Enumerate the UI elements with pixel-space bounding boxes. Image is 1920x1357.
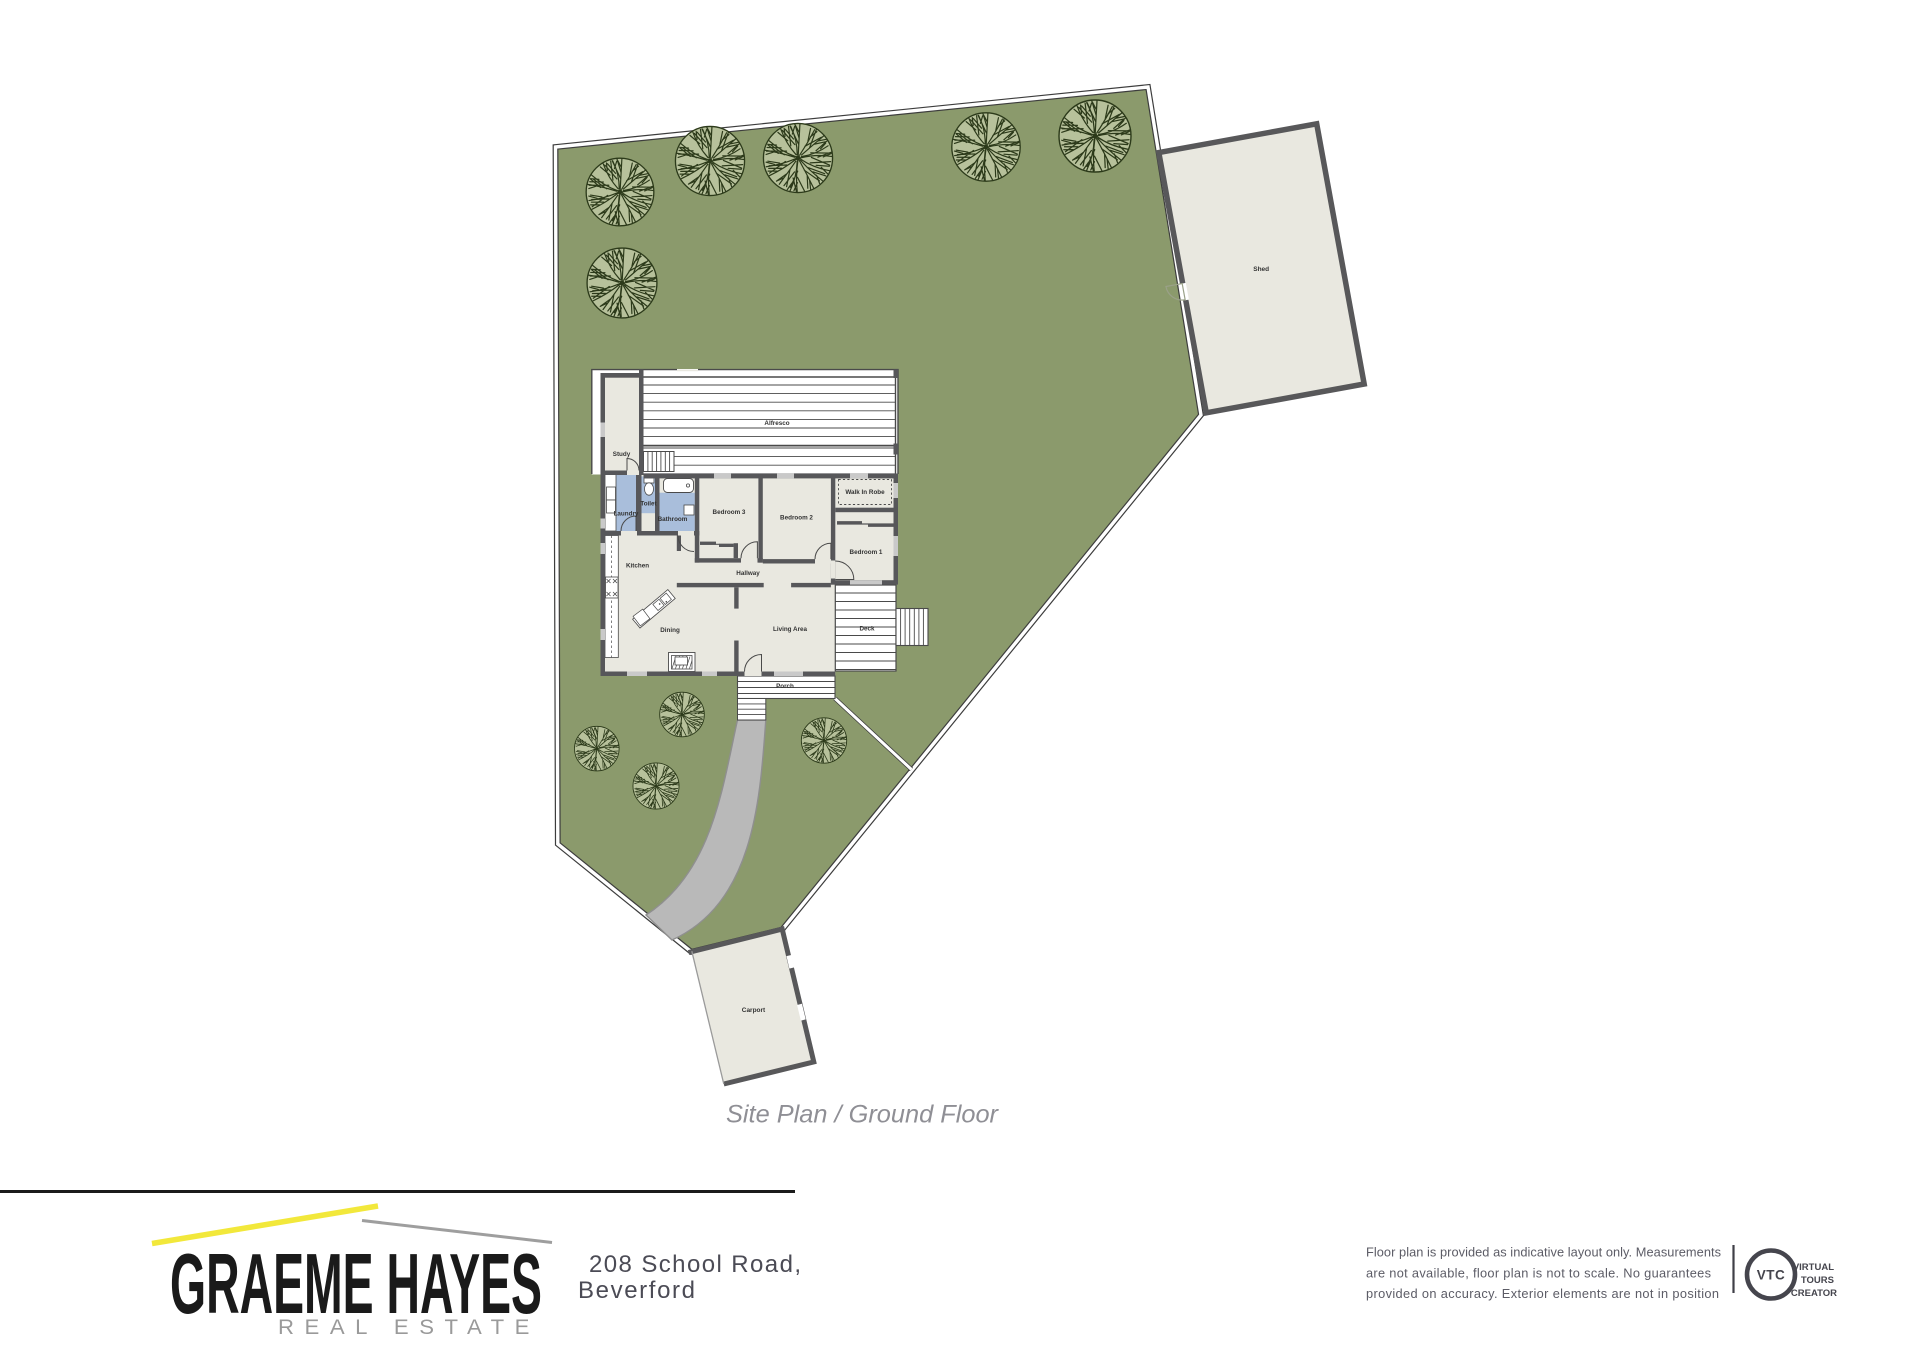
svg-text:Toilet: Toilet <box>640 501 657 508</box>
svg-text:Bedroom 3: Bedroom 3 <box>713 509 746 516</box>
svg-text:Laundry: Laundry <box>614 511 639 518</box>
svg-text:Beverford: Beverford <box>578 1277 695 1304</box>
svg-text:VTC: VTC <box>1757 1268 1786 1283</box>
svg-text:Study: Study <box>613 451 631 458</box>
svg-text:Bathroom: Bathroom <box>658 516 688 523</box>
svg-text:provided on accuracy. Exterior: provided on accuracy. Exterior elements … <box>1366 1286 1719 1301</box>
svg-text:Carport: Carport <box>742 1007 766 1014</box>
svg-text:Living Area: Living Area <box>773 626 808 633</box>
svg-text:Bedroom 1: Bedroom 1 <box>850 549 883 556</box>
svg-text:208 School Road,: 208 School Road, <box>589 1251 801 1278</box>
svg-text:Dining: Dining <box>660 627 680 634</box>
svg-text:VIRTUAL: VIRTUAL <box>1793 1262 1834 1273</box>
svg-text:Deck: Deck <box>859 626 875 633</box>
svg-text:Alfresco: Alfresco <box>764 420 789 427</box>
svg-text:Kitchen: Kitchen <box>626 563 649 570</box>
svg-text:are not available, floor plan: are not available, floor plan is not to … <box>1366 1265 1711 1280</box>
svg-text:REAL ESTATE: REAL ESTATE <box>278 1316 540 1339</box>
svg-text:Hallway: Hallway <box>736 570 760 577</box>
svg-text:Site Plan / Ground Floor: Site Plan / Ground Floor <box>726 1101 1000 1129</box>
svg-text:Shed: Shed <box>1253 266 1269 273</box>
svg-text:CREATOR: CREATOR <box>1791 1288 1837 1299</box>
svg-text:Bedroom 2: Bedroom 2 <box>780 515 813 522</box>
svg-text:Porch: Porch <box>776 683 794 690</box>
svg-text:Walk In Robe: Walk In Robe <box>845 489 885 496</box>
svg-text:Floor plan is provided as indi: Floor plan is provided as indicative lay… <box>1366 1245 1721 1260</box>
svg-text:TOURS: TOURS <box>1801 1275 1834 1286</box>
